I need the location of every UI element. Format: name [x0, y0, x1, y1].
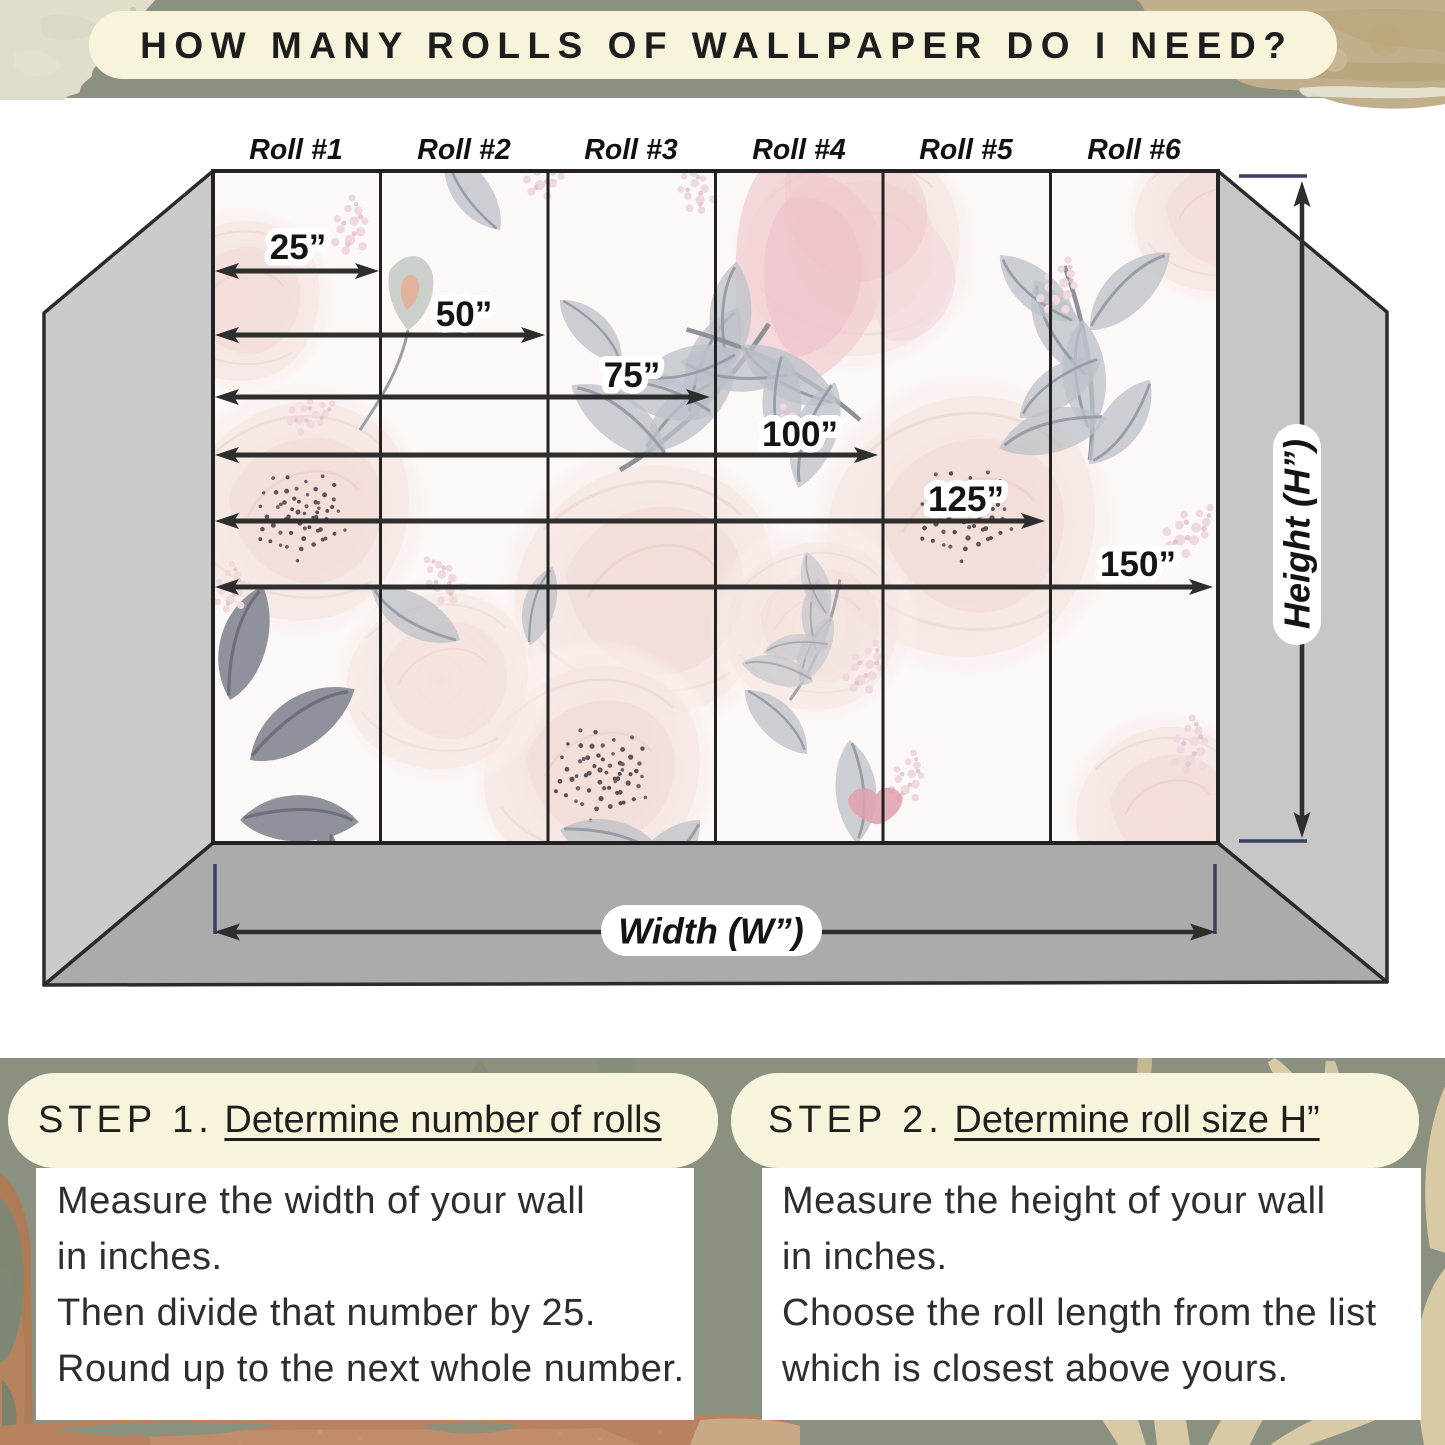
svg-text:Height (H”): Height (H”) — [1277, 439, 1318, 629]
svg-text:100”: 100” — [762, 415, 838, 454]
svg-text:Roll #2: Roll #2 — [417, 134, 511, 166]
svg-text:75”: 75” — [604, 356, 660, 395]
svg-text:Roll #5: Roll #5 — [919, 134, 1014, 166]
svg-text:Roll #3: Roll #3 — [584, 134, 678, 166]
svg-text:Roll #4: Roll #4 — [752, 134, 846, 166]
svg-text:Roll #6: Roll #6 — [1087, 134, 1181, 166]
svg-text:25”: 25” — [270, 228, 326, 267]
svg-text:50”: 50” — [436, 295, 492, 334]
svg-text:150”: 150” — [1100, 545, 1176, 584]
svg-text:Roll #1: Roll #1 — [249, 134, 342, 166]
svg-text:Width (W”): Width (W”) — [618, 911, 804, 952]
svg-text:125”: 125” — [928, 480, 1004, 519]
